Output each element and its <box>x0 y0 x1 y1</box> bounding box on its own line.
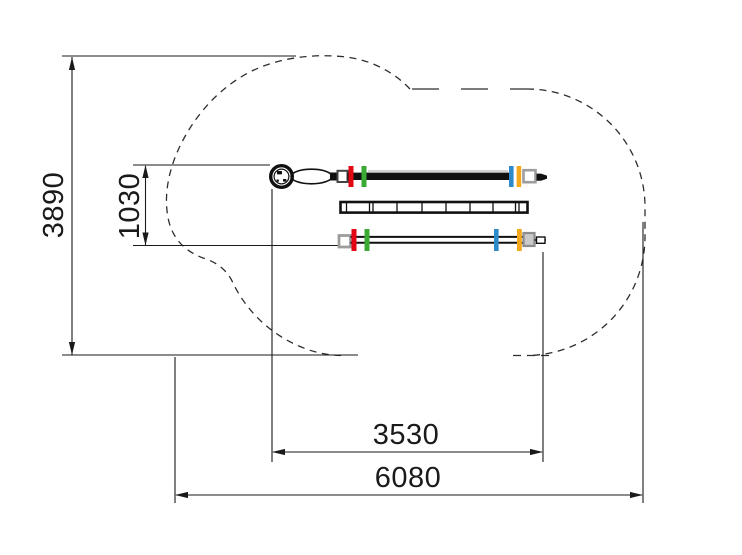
dim-label-depth: 3890 <box>38 172 70 239</box>
shackle <box>338 171 348 182</box>
slackline-lower <box>339 229 546 251</box>
marker-red <box>352 229 357 251</box>
marker-green <box>362 166 367 187</box>
arrowhead-left <box>272 449 285 455</box>
end-fitting-right <box>537 174 548 181</box>
anchor-bracket-right <box>524 233 535 246</box>
playground-plan-drawing: 3890 1030 3530 6080 <box>0 0 742 555</box>
arrowhead-left <box>175 492 188 498</box>
arrowhead-right <box>530 449 543 455</box>
marker-green <box>365 229 370 251</box>
arrowhead-right <box>630 492 643 498</box>
safety-zone-arc-right <box>527 89 645 356</box>
loop-connector <box>330 173 338 181</box>
end-bolt <box>537 237 546 243</box>
beam-body <box>341 202 528 213</box>
marker-yellow <box>517 166 522 187</box>
slackline-upper <box>271 166 547 188</box>
marker-yellow <box>517 229 522 251</box>
dim-width: 6080 <box>175 222 643 503</box>
marker-blue <box>509 166 514 187</box>
arrowhead-down <box>69 342 75 355</box>
strap-webbing <box>348 173 512 180</box>
dim-label-width: 6080 <box>375 462 442 494</box>
technical-drawing-sheet: 3890 1030 3530 6080 <box>0 0 742 555</box>
dim-span: 3530 <box>272 189 543 462</box>
anchor-bracket-left <box>339 236 351 248</box>
marker-red <box>349 166 354 187</box>
balance-beam <box>341 202 528 213</box>
dim-label-span: 3530 <box>373 419 440 451</box>
arrowhead-up <box>69 57 75 70</box>
dim-label-line-spacing: 1030 <box>114 173 146 240</box>
strap-loop <box>291 169 332 184</box>
dim-line-spacing: 1030 <box>114 165 342 246</box>
anchor-bracket-right <box>524 170 536 182</box>
marker-blue <box>494 229 499 251</box>
dim-depth: 3890 <box>38 56 358 355</box>
